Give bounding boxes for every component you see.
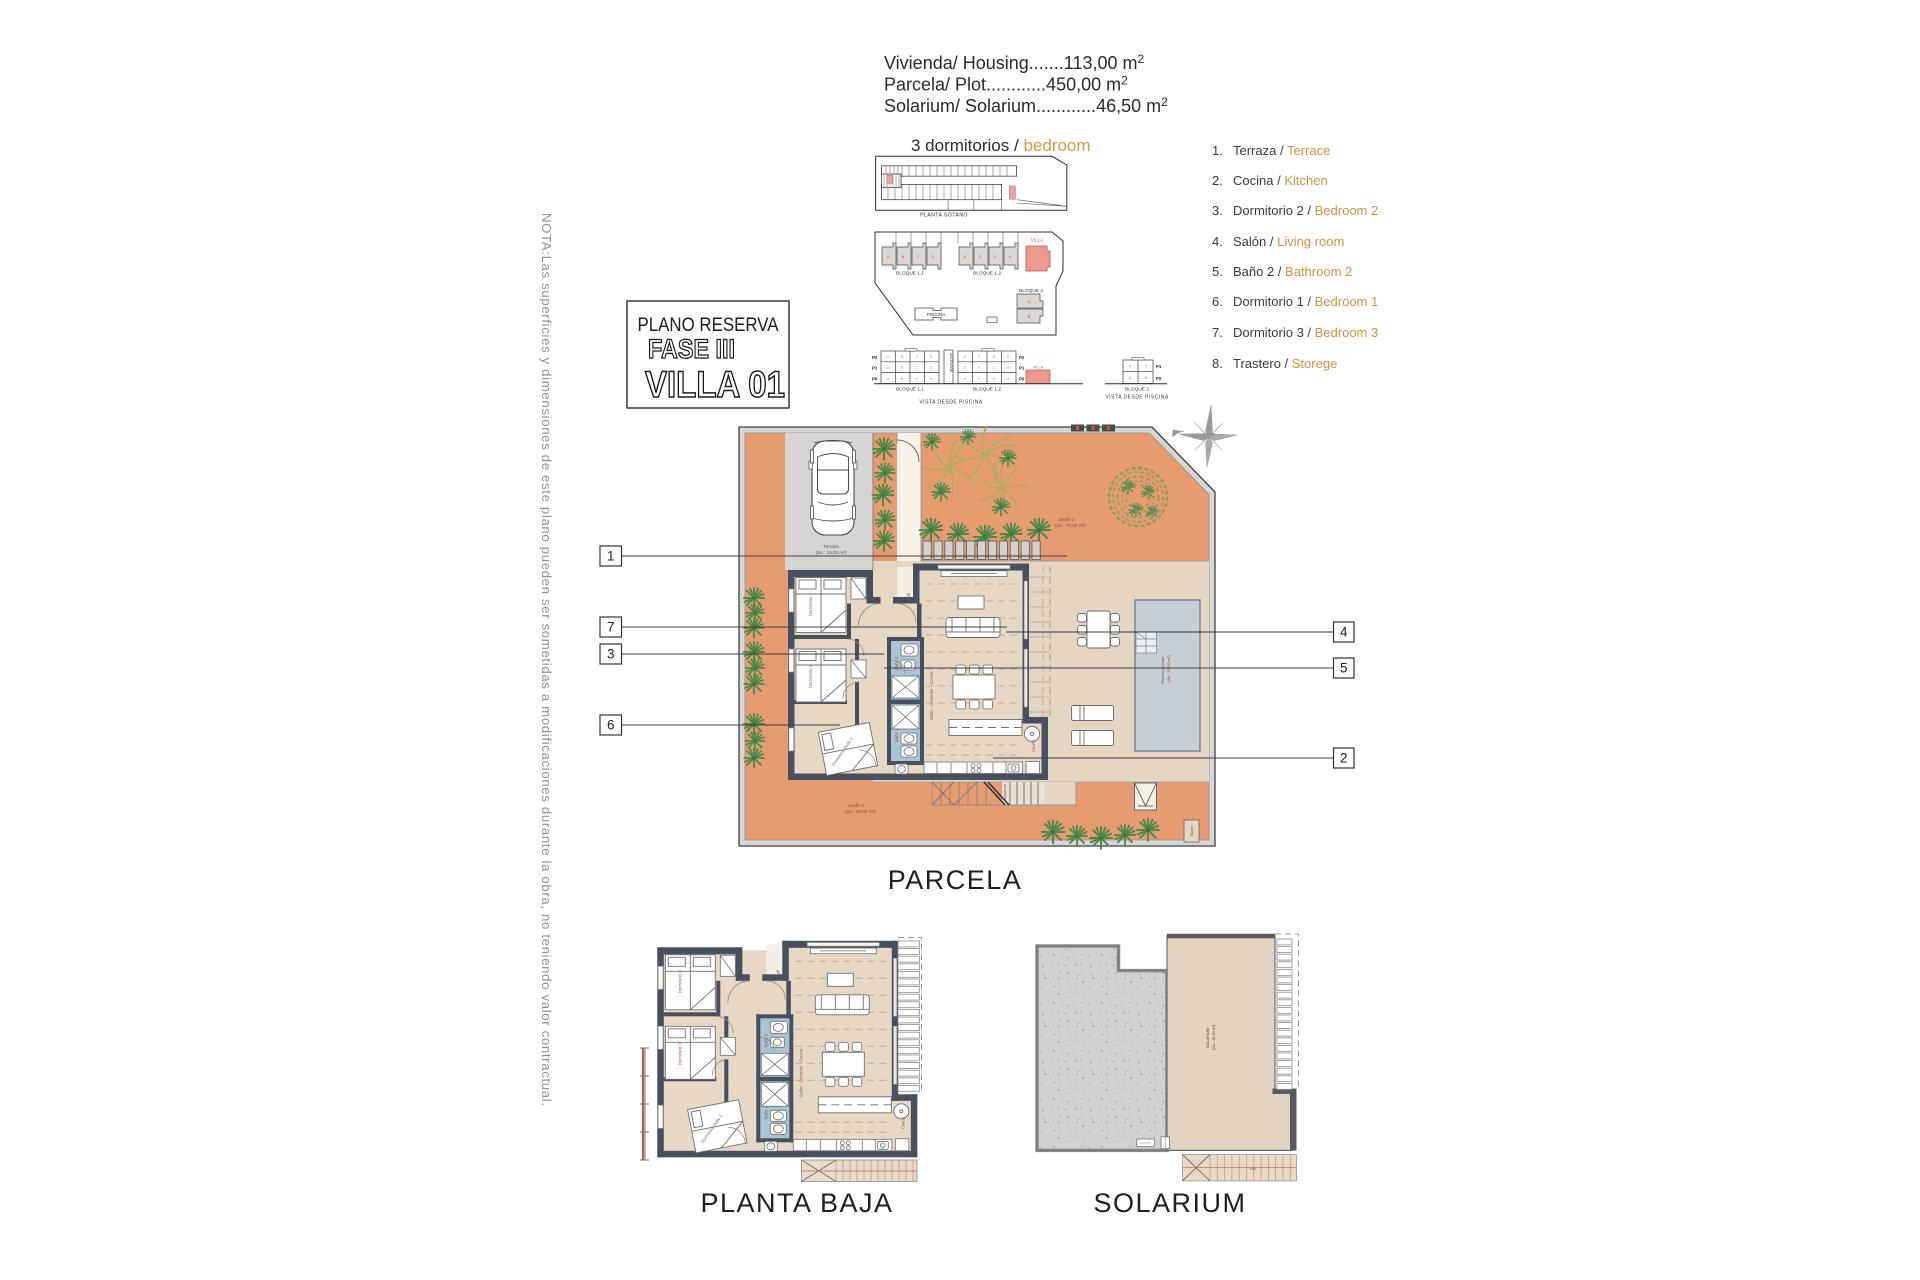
svg-text:B: B	[902, 255, 905, 259]
svg-text:VILLA: VILLA	[1033, 366, 1044, 370]
svg-text:G: G	[993, 355, 996, 359]
svg-text:H: H	[1007, 355, 1010, 359]
svg-text:2: 2	[1340, 751, 1348, 766]
svg-text:Vivienda/ Housing.......113,00: Vivienda/ Housing.......113,00 m2	[884, 52, 1145, 73]
svg-text:Piscina privada: Piscina privada	[1160, 656, 1165, 684]
svg-text:VILLA: VILLA	[1031, 238, 1044, 243]
svg-text:F0: F0	[1156, 376, 1162, 381]
svg-text:Buzón: Buzón	[1190, 826, 1194, 836]
svg-text:E: E	[964, 255, 967, 259]
svg-text:C: C	[916, 377, 919, 381]
svg-text:(Su : 15,00 m²): (Su : 15,00 m²)	[816, 550, 847, 555]
svg-text:C: C	[917, 255, 920, 259]
svg-text:(Su : 70,00 m²): (Su : 70,00 m²)	[1055, 523, 1086, 528]
svg-text:BLOQUE 1.2: BLOQUE 1.2	[973, 271, 1001, 277]
svg-text:C: C	[916, 366, 919, 370]
svg-text:P0: P0	[1019, 377, 1025, 382]
svg-text:3 dormitorios / bedroom: 3 dormitorios / bedroom	[911, 136, 1091, 155]
svg-text:Terraza / Terrace: Terraza / Terrace	[1233, 143, 1330, 158]
svg-text:Jardín 1: Jardín 1	[848, 803, 865, 808]
svg-text:Trastero / Storege: Trastero / Storege	[1233, 356, 1337, 371]
svg-text:Jardín 2: Jardín 2	[1058, 517, 1075, 522]
svg-text:6.: 6.	[1212, 294, 1223, 309]
svg-text:4.: 4.	[1212, 234, 1223, 249]
svg-text:P1: P1	[872, 366, 878, 371]
svg-text:P0: P0	[872, 377, 878, 382]
svg-text:Dormitorio 2 / Bedroom 2: Dormitorio 2 / Bedroom 2	[1233, 203, 1378, 218]
svg-text:D: D	[1145, 364, 1148, 368]
svg-text:D: D	[930, 377, 933, 381]
svg-text:PISCINA: PISCINA	[927, 312, 946, 317]
svg-text:PLANO RESERVA: PLANO RESERVA	[638, 314, 779, 336]
svg-text:Esc.: Esc.	[1250, 1167, 1257, 1171]
svg-text:5.: 5.	[1212, 264, 1223, 279]
svg-text:A: A	[1028, 300, 1031, 304]
svg-text:NOTA:Las superficies y dimensi: NOTA:Las superficies y dimensiones de es…	[539, 213, 554, 1106]
svg-text:Solarium/ Solarium............: Solarium/ Solarium............46,50 m2	[884, 95, 1168, 116]
svg-text:PARCELA: PARCELA	[888, 865, 1023, 895]
svg-text:Terraza: Terraza	[823, 544, 839, 549]
svg-text:Dormitorio 1 / Bedroom 1: Dormitorio 1 / Bedroom 1	[1233, 294, 1378, 309]
svg-text:D: D	[932, 255, 935, 259]
svg-text:G: G	[994, 255, 997, 259]
svg-text:BLOQUE 2: BLOQUE 2	[1019, 288, 1043, 294]
svg-text:Baño 2 / Bathroom 2: Baño 2 / Bathroom 2	[1233, 264, 1352, 279]
svg-text:Cocina / Kitchen: Cocina / Kitchen	[1233, 173, 1328, 188]
svg-text:PLANTA SÓTANO: PLANTA SÓTANO	[920, 212, 968, 219]
svg-text:C: C	[916, 355, 919, 359]
svg-text:(Su : 92,00 m²): (Su : 92,00 m²)	[845, 809, 876, 814]
svg-text:ASCENSOR: ASCENSOR	[949, 353, 953, 373]
svg-text:SOLARIUM: SOLARIUM	[1206, 1028, 1210, 1048]
svg-text:VISTA DESDE PISCINA: VISTA DESDE PISCINA	[1105, 395, 1168, 401]
svg-text:G: G	[993, 366, 996, 370]
svg-text:P2: P2	[872, 355, 878, 360]
svg-text:5: 5	[1340, 661, 1348, 676]
svg-text:PLANTA BAJA: PLANTA BAJA	[700, 1188, 893, 1218]
svg-text:Dormitorio 3 / Bedroom 3: Dormitorio 3 / Bedroom 3	[1233, 325, 1378, 340]
svg-text:3.: 3.	[1212, 203, 1223, 218]
svg-text:Bajada sol.: Bajada sol.	[1003, 783, 1007, 800]
svg-text:FASE III: FASE III	[648, 334, 735, 364]
svg-text:H: H	[1009, 255, 1012, 259]
svg-text:BLOQUE 2: BLOQUE 2	[1125, 387, 1149, 393]
svg-text:VISTA DESDE PISCINA: VISTA DESDE PISCINA	[919, 400, 982, 406]
svg-text:3: 3	[607, 647, 615, 662]
svg-text:BLOQUE 1.2: BLOQUE 1.2	[973, 387, 1001, 393]
svg-text:H: H	[1007, 377, 1010, 381]
svg-text:8.: 8.	[1212, 356, 1223, 371]
svg-text:Salón / Living room: Salón / Living room	[1233, 234, 1344, 249]
svg-text:1: 1	[607, 549, 615, 564]
svg-text:6: 6	[607, 718, 615, 733]
svg-text:D: D	[930, 355, 933, 359]
svg-text:7: 7	[607, 620, 615, 635]
svg-text:BLOQUE 1.1: BLOQUE 1.1	[896, 387, 924, 393]
svg-text:A: A	[887, 255, 890, 259]
svg-text:(Su : 46,50 m²): (Su : 46,50 m²)	[1212, 1024, 1216, 1050]
svg-text:VILLA 01: VILLA 01	[645, 364, 785, 405]
svg-text:4: 4	[1340, 625, 1348, 640]
svg-text:7.: 7.	[1212, 325, 1223, 340]
svg-text:1.: 1.	[1212, 143, 1223, 158]
svg-text:G: G	[993, 377, 996, 381]
svg-text:D: D	[930, 366, 933, 370]
svg-text:H: H	[1007, 366, 1010, 370]
svg-text:Parcela/ Plot............450,0: Parcela/ Plot............450,00 m2	[884, 74, 1128, 95]
svg-text:P1: P1	[1019, 366, 1025, 371]
svg-text:B: B	[1028, 315, 1031, 319]
svg-text:BLOQUE 1.1: BLOQUE 1.1	[896, 271, 924, 277]
svg-text:SOLARIUM: SOLARIUM	[1093, 1188, 1246, 1218]
svg-text:P1: P1	[1156, 364, 1162, 369]
svg-text:2.: 2.	[1212, 173, 1223, 188]
svg-text:P2: P2	[1019, 355, 1025, 360]
